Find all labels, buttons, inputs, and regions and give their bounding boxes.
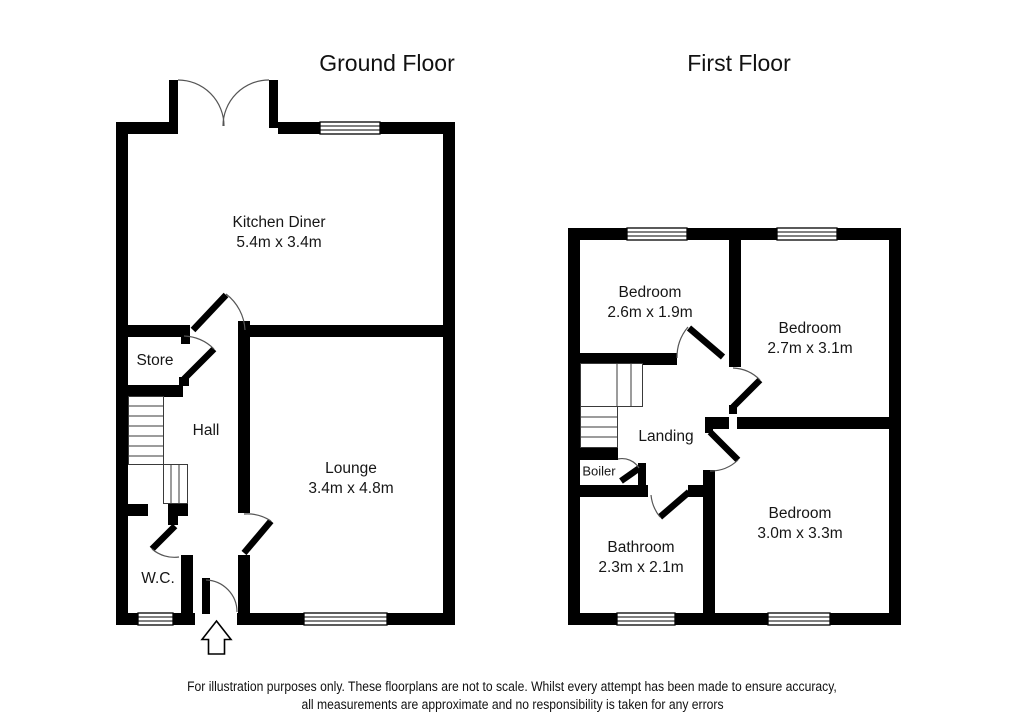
room-label-landing: Landing: [638, 427, 693, 447]
room-label-kitchen-diner: Kitchen Diner 5.4m x 3.4m: [232, 213, 325, 253]
window: [777, 228, 837, 240]
window: [627, 228, 687, 240]
room-name: Boiler: [582, 464, 615, 481]
room-label-wc: W.C.: [141, 569, 175, 589]
room-name: Kitchen Diner: [232, 213, 325, 233]
ground-floor-title: Ground Floor: [319, 50, 455, 77]
door-swing: [677, 327, 723, 358]
window: [617, 613, 675, 625]
room-name: Bathroom: [598, 538, 683, 558]
room-name: Store: [136, 351, 173, 371]
floorplan-page: Ground Floor First Floor Kitchen Diner 5…: [0, 0, 1024, 725]
room-dims: 5.4m x 3.4m: [232, 233, 325, 253]
door-swing: [733, 368, 760, 407]
room-dims: 3.0m x 3.3m: [757, 524, 842, 544]
room-label-lounge: Lounge 3.4m x 4.8m: [308, 459, 393, 499]
disclaimer-line-2: all measurements are approximate and no …: [301, 696, 723, 714]
stairs: [129, 397, 188, 504]
french-doors: [169, 80, 278, 128]
disclaimer: For illustration purposes only. These fl…: [0, 678, 1024, 714]
room-label-hall: Hall: [193, 421, 220, 441]
room-dims: 2.3m x 2.1m: [598, 558, 683, 578]
stairs: [580, 363, 643, 448]
door-swing: [618, 459, 641, 481]
room-dims: 2.6m x 1.9m: [607, 303, 692, 323]
first-floor-title: First Floor: [687, 50, 791, 77]
door-swing: [152, 526, 179, 557]
door-swing: [244, 514, 271, 553]
window: [304, 613, 387, 625]
entrance-arrow-icon: [202, 621, 231, 654]
room-name: Landing: [638, 427, 693, 447]
room-label-boiler: Boiler: [582, 464, 615, 481]
room-name: Lounge: [308, 459, 393, 479]
room-name: Bedroom: [757, 504, 842, 524]
door-swing: [710, 432, 738, 471]
room-dims: 3.4m x 4.8m: [308, 479, 393, 499]
window: [320, 122, 380, 134]
room-label-bedroom-2: Bedroom 2.7m x 3.1m: [767, 319, 852, 359]
door-swing: [651, 492, 689, 517]
room-dims: 2.7m x 3.1m: [767, 339, 852, 359]
room-name: Bedroom: [767, 319, 852, 339]
room-label-bathroom: Bathroom 2.3m x 2.1m: [598, 538, 683, 578]
room-name: Hall: [193, 421, 220, 441]
room-name: W.C.: [141, 569, 175, 589]
room-label-bedroom-1: Bedroom 2.6m x 1.9m: [607, 283, 692, 323]
window: [768, 613, 830, 625]
entrance-door: [202, 578, 237, 614]
room-label-bedroom-3: Bedroom 3.0m x 3.3m: [757, 504, 842, 544]
window: [138, 613, 173, 625]
room-label-store: Store: [136, 351, 173, 371]
room-name: Bedroom: [607, 283, 692, 303]
door-swing: [193, 294, 245, 330]
disclaimer-line-1: For illustration purposes only. These fl…: [187, 678, 837, 696]
